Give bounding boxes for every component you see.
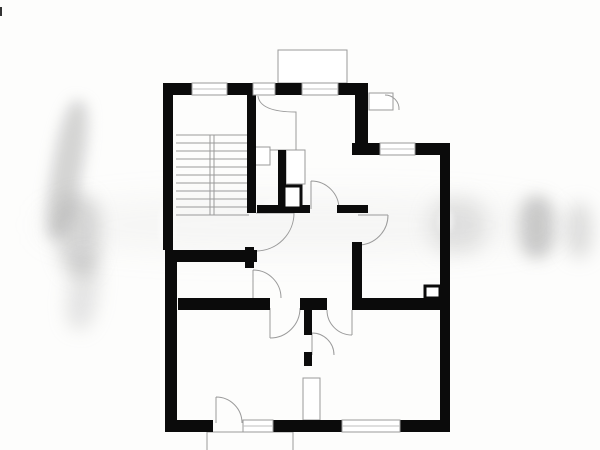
bottom-wall-seg-1 <box>165 420 213 432</box>
left-outer-wall-upper <box>163 83 173 250</box>
right-room-bottom-wall <box>352 298 440 310</box>
chimney-box <box>425 286 440 298</box>
top-wall-seg-2 <box>227 83 253 95</box>
bathroom-door-swing <box>311 181 339 209</box>
bottomright-room-door-swing <box>327 310 352 335</box>
terrace-door-swing <box>216 397 242 423</box>
floorplan-page <box>0 0 600 450</box>
thin-shapes-group <box>253 50 393 420</box>
bottom-wall-seg-3 <box>400 420 447 432</box>
bottomleft-room-door-swing <box>270 308 300 338</box>
stairs-group <box>176 135 249 215</box>
hall-bottom-wall-seg <box>300 298 327 310</box>
topright-top-wall-seg-1 <box>352 143 380 155</box>
between-rooms-door-swing <box>312 333 334 355</box>
bottom-rooms-divider-stub-2 <box>304 352 312 366</box>
left-edge-mark <box>0 7 2 16</box>
hall-left-wall-seg-1 <box>245 247 254 268</box>
hall-right-wall <box>352 242 362 300</box>
small-room-bottom-wall <box>178 298 270 310</box>
balcony-outline <box>278 50 347 83</box>
wardrobe-outline <box>303 378 320 420</box>
stair-bottom-thick-wall <box>165 250 257 262</box>
shaft-box <box>284 186 301 208</box>
bottom-rooms-divider-stub-1 <box>304 310 312 335</box>
entrance-door-swing <box>256 213 294 251</box>
vestibule-curved-wall <box>258 96 296 150</box>
terrace-outline <box>207 432 293 450</box>
top-wall-seg-3 <box>275 83 302 95</box>
bath-fixture-outline <box>286 150 305 184</box>
bottom-wall-seg-2 <box>273 420 342 432</box>
topright-room-door-swing <box>358 215 388 245</box>
stair-bath-divider-wall <box>247 95 256 213</box>
small-room-door-swing <box>253 270 281 298</box>
left-outer-wall-lower <box>165 250 177 432</box>
hall-top-wall-seg-2 <box>337 205 368 213</box>
floor-plan-drawing <box>0 0 600 450</box>
